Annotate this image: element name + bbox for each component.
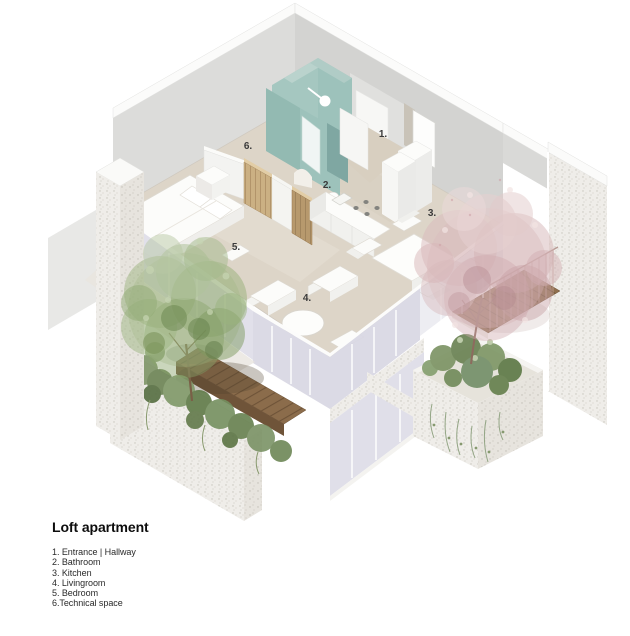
shower-head	[320, 96, 331, 107]
page-title: Loft apartment	[52, 519, 149, 535]
legend: Loft apartment 1. Entrance | Hallway 2. …	[52, 519, 149, 609]
room-marker-6: 6.	[244, 141, 253, 152]
room-marker-5: 5.	[232, 242, 241, 253]
legend-item-bedroom: 5. Bedroom	[52, 588, 149, 598]
right-outer-wall	[548, 152, 607, 425]
room-marker-2: 2.	[323, 180, 332, 191]
room-marker-4: 4.	[303, 293, 312, 304]
room-marker-1: 1.	[379, 129, 388, 140]
legend-item-technical: 6.Technical space	[52, 598, 149, 608]
legend-item-entrance: 1. Entrance | Hallway	[52, 547, 149, 557]
right-planter	[413, 334, 543, 469]
legend-item-kitchen: 3. Kitchen	[52, 568, 149, 578]
legend-item-bathroom: 2. Bathroom	[52, 557, 149, 567]
legend-item-livingroom: 4. Livingroom	[52, 578, 149, 588]
room-marker-3: 3.	[428, 208, 437, 219]
